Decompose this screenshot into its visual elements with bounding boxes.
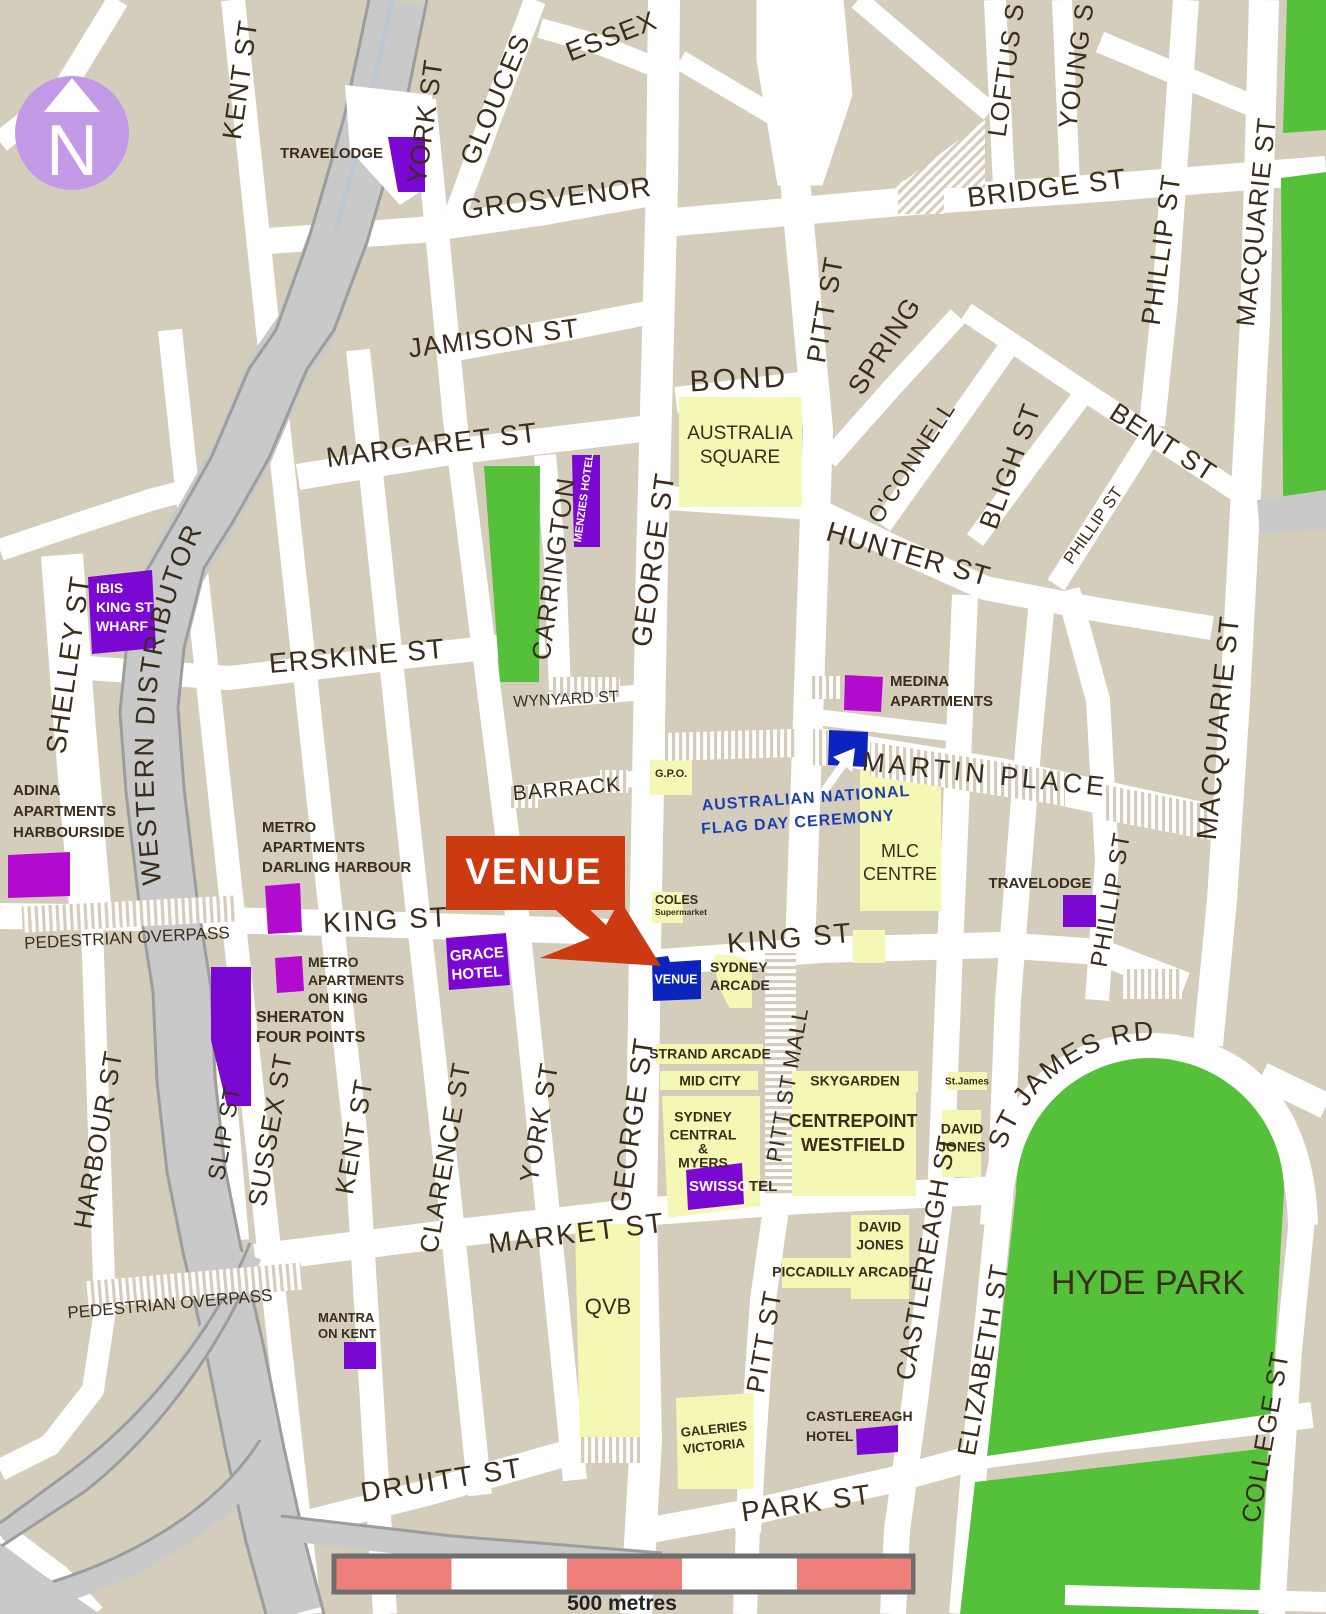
- svg-text:TRAVELODGE: TRAVELODGE: [988, 875, 1091, 892]
- svg-text:500 metres: 500 metres: [567, 1592, 677, 1614]
- svg-text:SWISSOTEL: SWISSOTEL: [689, 1178, 777, 1195]
- svg-text:APARTMENTS: APARTMENTS: [308, 972, 404, 988]
- svg-text:WHARF: WHARF: [96, 618, 149, 634]
- svg-text:HOTEL: HOTEL: [451, 963, 503, 984]
- svg-text:KING ST: KING ST: [96, 599, 153, 615]
- svg-text:CASTLEREAGH: CASTLEREAGH: [806, 1408, 913, 1424]
- svg-text:APARTMENTS: APARTMENTS: [262, 839, 365, 856]
- svg-text:QVB: QVB: [585, 1294, 631, 1319]
- svg-text:DAVID: DAVID: [859, 1219, 902, 1235]
- svg-text:MEDINA: MEDINA: [890, 673, 949, 690]
- svg-text:TRAVELODGE: TRAVELODGE: [280, 145, 383, 162]
- svg-text:COLES: COLES: [655, 893, 698, 907]
- svg-text:SYDNEY: SYDNEY: [710, 959, 768, 975]
- svg-text:HOTEL: HOTEL: [806, 1428, 854, 1444]
- svg-text:MYERS: MYERS: [678, 1155, 728, 1171]
- svg-text:CENTREPOINT: CENTREPOINT: [788, 1111, 917, 1131]
- svg-text:VENUE: VENUE: [465, 851, 602, 892]
- svg-text:ON KING: ON KING: [308, 990, 368, 1006]
- svg-text:ADINA: ADINA: [13, 782, 61, 799]
- svg-text:HYDE PARK: HYDE PARK: [1051, 1264, 1245, 1302]
- svg-text:DARLING HARBOUR: DARLING HARBOUR: [262, 859, 411, 876]
- svg-text:ON KENT: ON KENT: [318, 1326, 377, 1341]
- svg-text:VENUE: VENUE: [654, 972, 697, 986]
- svg-text:MANTRA: MANTRA: [318, 1310, 375, 1325]
- svg-text:Supermarket: Supermarket: [655, 907, 707, 917]
- svg-text:MLC: MLC: [881, 841, 919, 861]
- svg-text:DAVID: DAVID: [941, 1121, 984, 1137]
- svg-text:SHERATON: SHERATON: [256, 1009, 344, 1026]
- svg-text:SKYGARDEN: SKYGARDEN: [810, 1073, 899, 1089]
- svg-text:JONES: JONES: [856, 1237, 903, 1253]
- svg-text:APARTMENTS: APARTMENTS: [13, 803, 116, 820]
- svg-text:KING ST: KING ST: [322, 901, 449, 939]
- svg-text:STRAND ARCADE: STRAND ARCADE: [649, 1046, 771, 1062]
- svg-text:SQUARE: SQUARE: [700, 447, 780, 468]
- svg-text:CENTRE: CENTRE: [863, 864, 937, 884]
- svg-text:ARCADE: ARCADE: [710, 977, 770, 993]
- svg-text:FOUR POINTS: FOUR POINTS: [256, 1029, 366, 1046]
- svg-text:BOND: BOND: [689, 360, 789, 398]
- svg-text:N: N: [46, 111, 98, 191]
- svg-text:G.P.O.: G.P.O.: [655, 768, 687, 780]
- svg-text:MID CITY: MID CITY: [679, 1073, 741, 1089]
- svg-text:SYDNEY: SYDNEY: [674, 1109, 732, 1125]
- svg-text:St.James: St.James: [945, 1077, 989, 1088]
- svg-text:APARTMENTS: APARTMENTS: [890, 693, 993, 710]
- svg-text:JONES: JONES: [938, 1139, 985, 1155]
- svg-text:HARBOURSIDE: HARBOURSIDE: [13, 824, 125, 841]
- svg-text:METRO: METRO: [308, 954, 359, 970]
- svg-text:PICCADILLY ARCADE: PICCADILLY ARCADE: [772, 1264, 918, 1280]
- svg-text:IBIS: IBIS: [96, 580, 123, 596]
- svg-text:METRO: METRO: [262, 819, 316, 836]
- svg-text:WESTFIELD: WESTFIELD: [801, 1135, 905, 1155]
- svg-text:AUSTRALIA: AUSTRALIA: [687, 423, 793, 444]
